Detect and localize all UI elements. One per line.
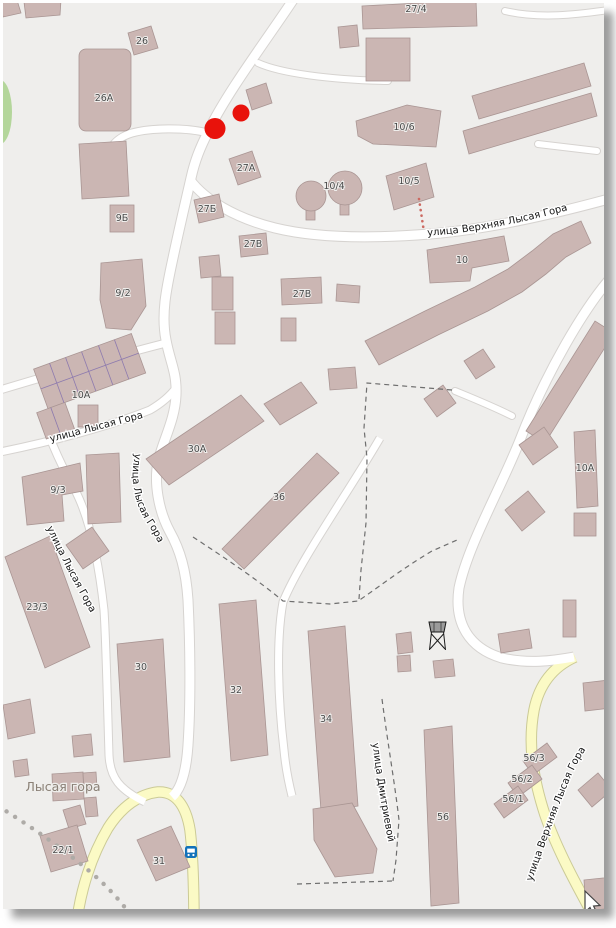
red-dot-marker-1[interactable]: [205, 118, 226, 139]
map-viewport[interactable]: улица Верхняя Лысая Гора улица Лысая Гор…: [3, 3, 604, 909]
building-label-26a: 26А: [95, 93, 114, 104]
building-label-34: 34: [320, 714, 332, 725]
building-label-27-4: 27/4: [405, 4, 426, 15]
building-label-27v-2: 27В: [293, 289, 312, 300]
building-label-10-6: 10/6: [393, 122, 414, 133]
building-label-9-2: 9/2: [115, 288, 130, 299]
bus-stop-icon: [185, 846, 197, 858]
building-label-26: 26: [136, 36, 148, 47]
building-label-23-3: 23/3: [26, 602, 47, 613]
building-label-56-1: 56/1: [502, 794, 523, 805]
building-label-56-2: 56/2: [511, 774, 532, 785]
building-label-22-1: 22/1: [52, 845, 73, 856]
building-label-9b: 9Б: [116, 213, 129, 224]
building-label-10: 10: [456, 255, 468, 266]
building-label-56-3: 56/3: [523, 753, 544, 764]
building-label-10-4: 10/4: [323, 181, 344, 192]
building-label-31: 31: [153, 856, 165, 867]
building-label-36: 36: [273, 492, 285, 503]
red-dot-marker-2[interactable]: [233, 105, 250, 122]
building-label-10a-garages: 10А: [72, 390, 91, 401]
building-label-27b: 27Б: [198, 204, 217, 215]
place-label-lysaya-gora: Лысая гора: [25, 779, 100, 794]
building-label-30a: 30А: [188, 444, 207, 455]
building-label-10a-east: 10А: [576, 463, 595, 474]
building-label-9-3: 9/3: [50, 485, 65, 496]
building-label-32: 32: [230, 685, 242, 696]
building-label-27a: 27А: [237, 163, 256, 174]
map-canvas[interactable]: улица Верхняя Лысая Гора улица Лысая Гор…: [3, 3, 604, 909]
building-label-10-5: 10/5: [398, 176, 419, 187]
building-label-30: 30: [135, 662, 147, 673]
building-label-27v-1: 27В: [244, 239, 263, 250]
building-label-56: 56: [437, 812, 449, 823]
